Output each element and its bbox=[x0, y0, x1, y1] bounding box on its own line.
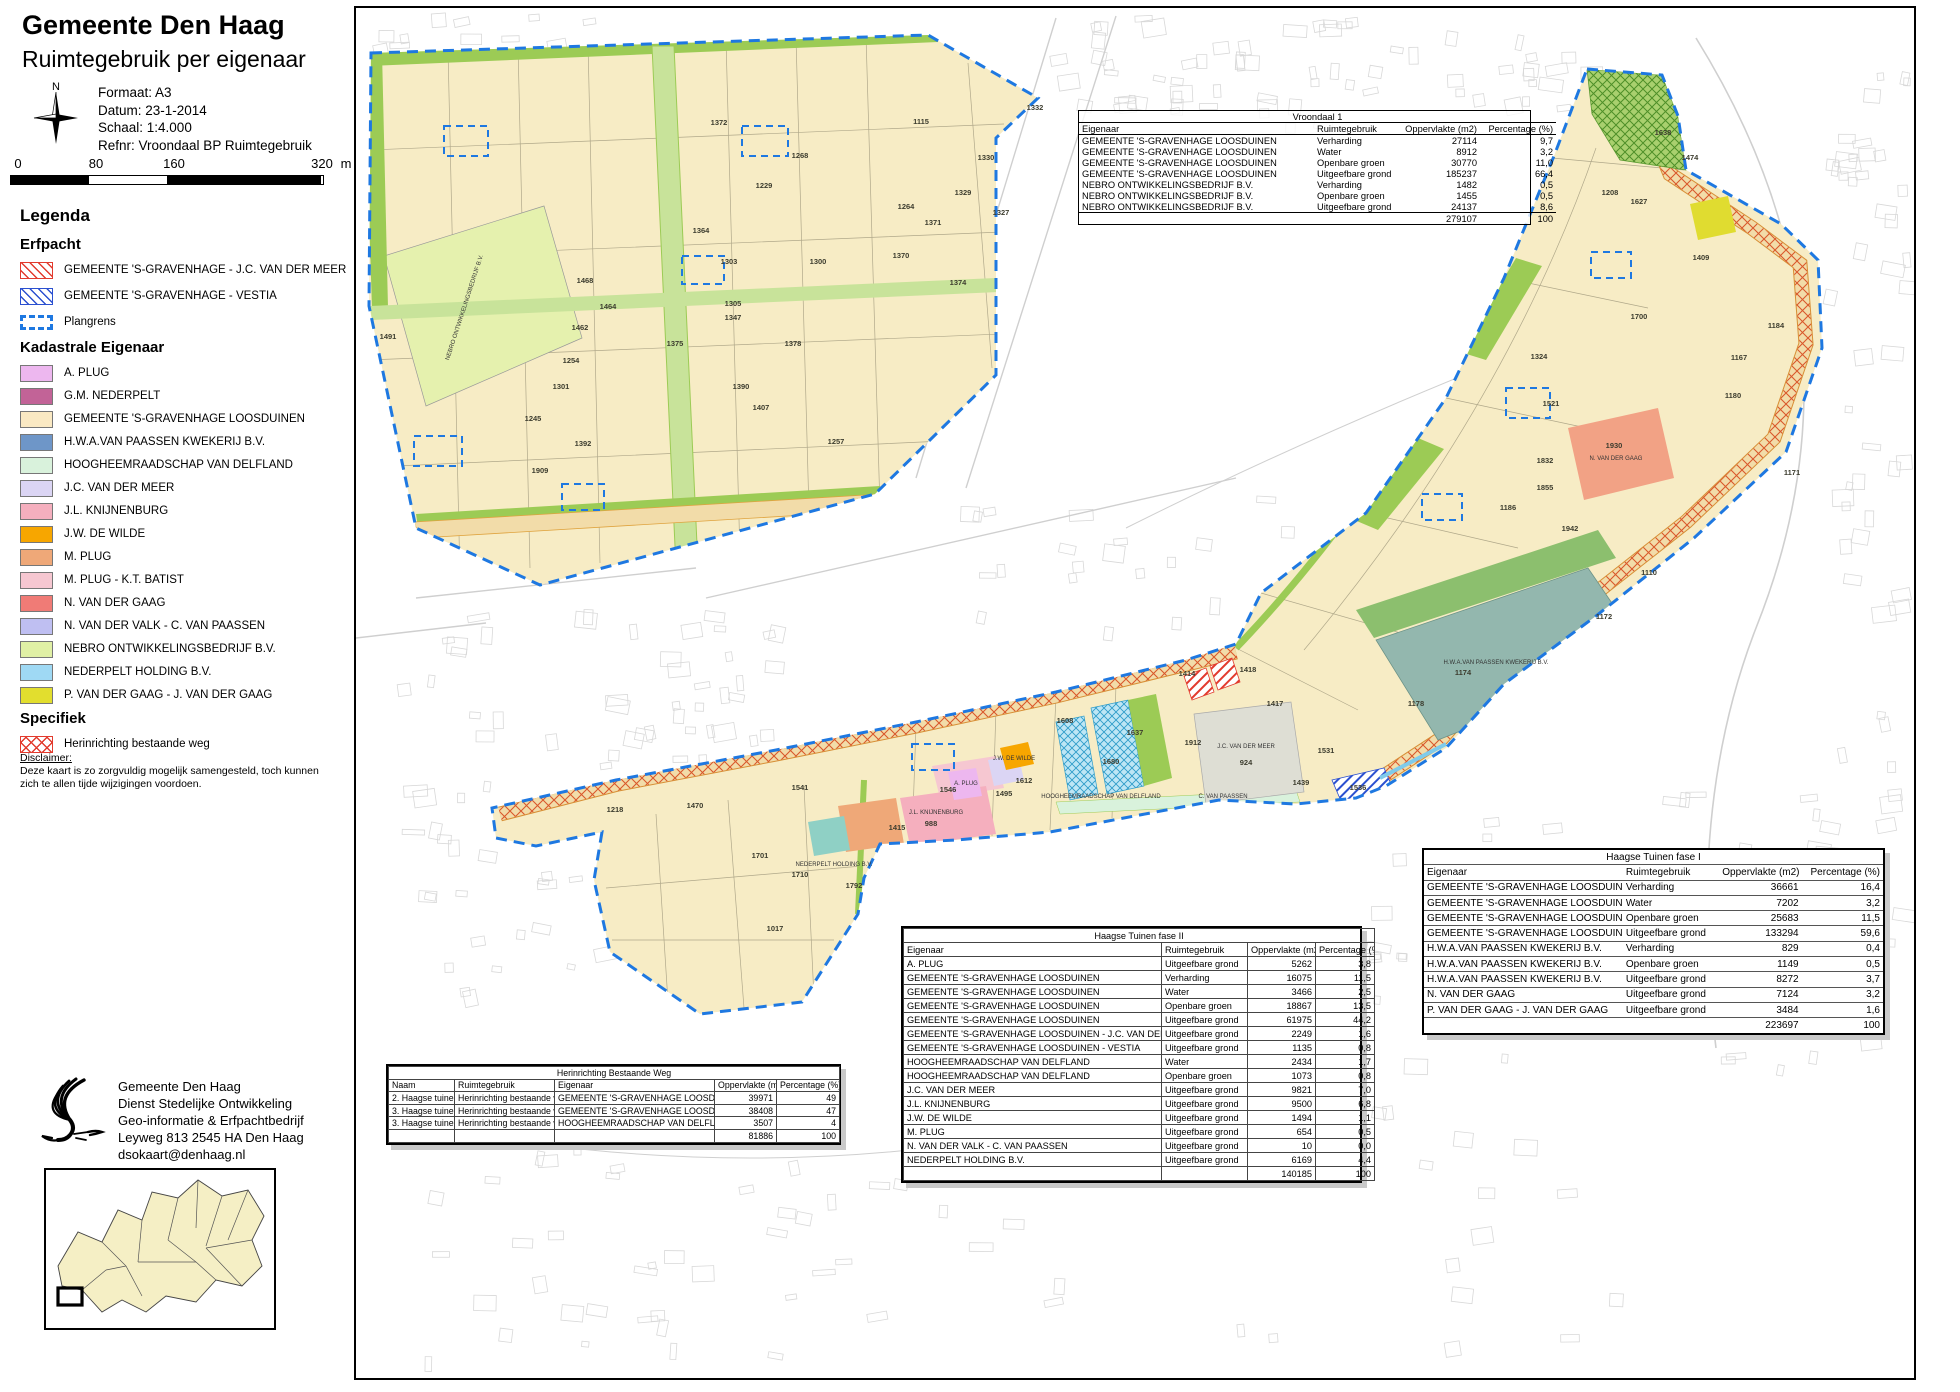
legend-item: GEMEENTE 'S-GRAVENHAGE LOOSDUINEN bbox=[20, 410, 350, 428]
legend-item: GEMEENTE 'S-GRAVENHAGE - VESTIA bbox=[20, 287, 350, 305]
table-cell: 2249 bbox=[1248, 1027, 1316, 1041]
owner-name: J.L. KNIJNENBURG bbox=[909, 810, 964, 816]
owner-name: N. VAN DER GAAG bbox=[1590, 456, 1643, 462]
table-cell: 1,6 bbox=[1802, 1002, 1883, 1017]
legend-swatch-solid bbox=[20, 526, 53, 543]
legend-item-label: GEMEENTE 'S-GRAVENHAGE - VESTIA bbox=[64, 290, 277, 302]
table-cell: 3,2 bbox=[1802, 895, 1883, 910]
legend-swatch-solid bbox=[20, 365, 53, 382]
parcel-number: 1174 bbox=[1455, 668, 1472, 677]
table-cell bbox=[455, 1129, 555, 1142]
table-cell: 1482 bbox=[1402, 179, 1480, 190]
north-label: N bbox=[52, 81, 60, 93]
parcel-number: 1186 bbox=[1500, 503, 1516, 512]
table-cell: Verharding bbox=[1162, 971, 1248, 985]
parcel-number: 1612 bbox=[1016, 776, 1033, 785]
parcel-number: 1792 bbox=[846, 881, 863, 890]
table-cell: H.W.A.VAN PAASSEN KWEKERIJ B.V. bbox=[1424, 957, 1623, 972]
table-cell: Uitgeefbare grond bbox=[1623, 987, 1719, 1002]
parcel-number: 1491 bbox=[380, 332, 397, 341]
parcel-number: 1329 bbox=[955, 188, 972, 197]
parcel-number: 1330 bbox=[978, 153, 995, 162]
legend-swatch-cross-red bbox=[20, 736, 53, 753]
table-cell: 100 bbox=[1316, 1167, 1375, 1181]
table-cell: 3,8 bbox=[1316, 957, 1375, 971]
parcel-number: 1378 bbox=[785, 339, 802, 348]
table-cell: GEMEENTE 'S-GRAVENHAGE LOOSDUINEN bbox=[1424, 911, 1623, 926]
table-cell: 6,8 bbox=[1316, 1097, 1375, 1111]
table-cell: 47 bbox=[777, 1104, 840, 1117]
table-cell: Percentage (%) bbox=[1316, 943, 1375, 957]
table-cell: 18867 bbox=[1248, 999, 1316, 1013]
table-cell: 0,5 bbox=[1802, 957, 1883, 972]
table-cell: Herinrichting bestaande weg bbox=[455, 1117, 555, 1130]
parcel-nederpelt-lobe bbox=[808, 816, 850, 856]
legend-item-label: HOOGHEEMRAADSCHAP VAN DELFLAND bbox=[64, 459, 293, 471]
table-cell: 1073 bbox=[1248, 1069, 1316, 1083]
table-cell: 0,4 bbox=[1802, 941, 1883, 956]
legend-item: J.L. KNIJNENBURG bbox=[20, 502, 350, 520]
legend-item: M. PLUG - K.T. BATIST bbox=[20, 571, 350, 589]
legend-item: NEDERPELT HOLDING B.V. bbox=[20, 663, 350, 681]
table-cell: Water bbox=[1314, 146, 1402, 157]
table-cell: H.W.A.VAN PAASSEN KWEKERIJ B.V. bbox=[1424, 941, 1623, 956]
table-cell: NEBRO ONTWIKKELINGSBEDRIJF B.V. bbox=[1079, 179, 1314, 190]
legend-swatch-solid bbox=[20, 503, 53, 520]
table-cell: GEMEENTE 'S-GRAVENHAGE LOOSDUINEN bbox=[1079, 146, 1314, 157]
table-cell: Oppervlakte (m2) bbox=[1248, 943, 1316, 957]
addr-line: Dienst Stedelijke Ontwikkeling bbox=[118, 1095, 304, 1112]
legend-item-label: N. VAN DER GAAG bbox=[64, 597, 165, 609]
parcel-number: 1407 bbox=[753, 403, 770, 412]
parcel-number: 1268 bbox=[792, 151, 809, 160]
parcel-number: 1495 bbox=[996, 789, 1013, 798]
table-cell: 1135 bbox=[1248, 1041, 1316, 1055]
table-cell: 3,2 bbox=[1480, 146, 1556, 157]
table-cell: Verharding bbox=[1314, 179, 1402, 190]
table-cell: 4,4 bbox=[1316, 1153, 1375, 1167]
parcel-number: 1110 bbox=[1641, 568, 1657, 577]
table-cell: Eigenaar bbox=[904, 943, 1162, 957]
parcel-number: 1257 bbox=[828, 437, 845, 446]
table-cell: 100 bbox=[1480, 213, 1556, 225]
legend-item-label: G.M. NEDERPELT bbox=[64, 390, 160, 402]
table-cell: 100 bbox=[777, 1129, 840, 1142]
table-cell: 11,5 bbox=[1802, 911, 1883, 926]
table-cell: 5262 bbox=[1248, 957, 1316, 971]
addr-line: Gemeente Den Haag bbox=[118, 1078, 304, 1095]
table-haagse-tuinen-fase-2: Haagse Tuinen fase IIEigenaarRuimtegebru… bbox=[901, 926, 1362, 1183]
table-cell: Oppervlakte (m2 bbox=[715, 1079, 777, 1092]
parcel-number: 1680 bbox=[1103, 757, 1120, 766]
parcel-number: 1392 bbox=[575, 439, 592, 448]
table-cell: GEMEENTE 'S-GRAVENHAGE LOOSDUINEN bbox=[1079, 168, 1314, 179]
table-cell: 7202 bbox=[1719, 895, 1801, 910]
table-cell: NEDERPELT HOLDING B.V. bbox=[904, 1153, 1162, 1167]
parcel-number: 1172 bbox=[1596, 612, 1612, 621]
meta-formaat: Formaat: A3 bbox=[98, 84, 312, 102]
legend-swatch-solid bbox=[20, 618, 53, 635]
table-cell: 9500 bbox=[1248, 1097, 1316, 1111]
locator-highlight-marker bbox=[58, 1288, 82, 1305]
table-cell: Water bbox=[1162, 985, 1248, 999]
legend-swatch-solid bbox=[20, 572, 53, 589]
parcel-number: 1414 bbox=[1179, 669, 1197, 678]
parcel-number: 1208 bbox=[1602, 188, 1619, 197]
table-cell: 13,5 bbox=[1316, 999, 1375, 1013]
table-cell: Naam bbox=[389, 1079, 455, 1092]
parcel-number: 1468 bbox=[577, 276, 594, 285]
table-cell: Openbare groen bbox=[1162, 999, 1248, 1013]
table-cell: P. VAN DER GAAG - J. VAN DER GAAG bbox=[1424, 1002, 1623, 1017]
legend-swatch-dash-blue bbox=[20, 315, 53, 330]
table-cell: 27114 bbox=[1402, 135, 1480, 147]
table-cell bbox=[1314, 213, 1402, 225]
table-cell: 0,5 bbox=[1316, 1125, 1375, 1139]
table-cell: Ruimtegebruik bbox=[1162, 943, 1248, 957]
table-cell: 7,0 bbox=[1316, 1083, 1375, 1097]
table-haagse-tuinen-fase-1: Haagse Tuinen fase IEigenaarRuimtegebrui… bbox=[1422, 848, 1885, 1035]
table-cell: Openbare groen bbox=[1314, 190, 1402, 201]
table-cell: Verharding bbox=[1623, 880, 1719, 895]
legend-section-heading: Kadastrale Eigenaar bbox=[20, 339, 350, 356]
legend-item: Plangrens bbox=[20, 313, 350, 331]
table-cell: 3,7 bbox=[1802, 972, 1883, 987]
table-cell bbox=[904, 1167, 1162, 1181]
legend-item: N. VAN DER GAAG bbox=[20, 594, 350, 612]
table-cell: Percentage (%) bbox=[1480, 123, 1556, 135]
parcel-number: 1370 bbox=[893, 251, 910, 260]
table-cell: Percentage (%) bbox=[777, 1079, 840, 1092]
table-cell: M. PLUG bbox=[904, 1125, 1162, 1139]
table-cell: 38408 bbox=[715, 1104, 777, 1117]
legend-swatch-solid bbox=[20, 687, 53, 704]
parcel-number: 1301 bbox=[553, 382, 570, 391]
table-cell: HOOGHEEMRAADSCHAP VAN DELFLAND bbox=[904, 1069, 1162, 1083]
legend-item-label: NEDERPELT HOLDING B.V. bbox=[64, 666, 211, 678]
legend-swatch-hatch-blue bbox=[20, 288, 53, 305]
table-cell: Openbare groen bbox=[1623, 957, 1719, 972]
table-cell: GEMEENTE 'S-GRAVENHAGE LOOSDUINEN bbox=[1424, 895, 1623, 910]
table-cell: 11,5 bbox=[1316, 971, 1375, 985]
table-cell: 2. Haagse tuinen bbox=[389, 1092, 455, 1105]
disclaimer-text: Deze kaart is zo zorgvuldig mogelijk sam… bbox=[20, 765, 319, 790]
parcel-number: 1390 bbox=[733, 382, 750, 391]
legend-item-label: Plangrens bbox=[64, 316, 116, 328]
locator-map bbox=[44, 1168, 276, 1330]
table-cell: GEMEENTE 'S-GRAVENHAGE LOOSDUINEN bbox=[904, 971, 1162, 985]
parcel-number: 1327 bbox=[993, 208, 1010, 217]
table-cell: GEMEENTE 'S-GRAVENHAGE LOOSDUINEN bbox=[904, 985, 1162, 999]
table-title: Vroondaal 1 bbox=[1079, 111, 1556, 123]
table-cell: N. VAN DER VALK - C. VAN PAASSEN bbox=[904, 1139, 1162, 1153]
table-cell: 44,2 bbox=[1316, 1013, 1375, 1027]
parcel-number: 1332 bbox=[1027, 103, 1044, 112]
parcel-number: 1254 bbox=[563, 356, 581, 365]
table-cell: 1149 bbox=[1719, 957, 1801, 972]
legend-item: H.W.A.VAN PAASSEN KWEKERIJ B.V. bbox=[20, 433, 350, 451]
table-cell: GEMEENTE 'S-GRAVENHAGE LOOSDUINEN bbox=[904, 999, 1162, 1013]
legend: Legenda ErfpachtGEMEENTE 'S-GRAVENHAGE -… bbox=[20, 206, 350, 758]
parcel-number: 1184 bbox=[1768, 321, 1785, 330]
table-cell: Uitgeefbare grond bbox=[1162, 1097, 1248, 1111]
parcel-number: 1462 bbox=[572, 323, 589, 332]
table-cell: 654 bbox=[1248, 1125, 1316, 1139]
owner-name: J.C. VAN DER MEER bbox=[1217, 744, 1275, 750]
table-cell: 10 bbox=[1248, 1139, 1316, 1153]
parcel-number: 1627 bbox=[1631, 197, 1648, 206]
addr-line: Geo-informatie & Erfpachtbedrijf bbox=[118, 1112, 304, 1129]
table-cell: Uitgeefbare grond bbox=[1162, 1125, 1248, 1139]
table-cell: HOOGHEEMRAADSCHAP VAN DELFLAND bbox=[904, 1055, 1162, 1069]
parcel-number: 1855 bbox=[1537, 483, 1554, 492]
owner-name: NEDERPELT HOLDING B.V. bbox=[796, 862, 873, 868]
parcel-number: 1418 bbox=[1240, 665, 1257, 674]
parcel-number: 1364 bbox=[693, 226, 711, 235]
table-cell: 1455 bbox=[1402, 190, 1480, 201]
table-cell: Ruimtegebruik bbox=[455, 1079, 555, 1092]
parcel-number: 1474 bbox=[1682, 153, 1700, 162]
parcel-number: 1521 bbox=[1543, 399, 1560, 408]
table-cell: GEMEENTE 'S-GRAVENHAGE LOOSDUINEN bbox=[1424, 880, 1623, 895]
parcel-number: 1439 bbox=[1293, 778, 1310, 787]
legend-item-label: J.L. KNIJNENBURG bbox=[64, 505, 168, 517]
parcel-p-van-der-gaag bbox=[1690, 196, 1736, 240]
table-cell: 829 bbox=[1719, 941, 1801, 956]
parcel-number: 1912 bbox=[1185, 738, 1202, 747]
parcel-number: 1264 bbox=[898, 202, 916, 211]
table-cell: 9821 bbox=[1248, 1083, 1316, 1097]
addr-line: Leyweg 813 2545 HA Den Haag bbox=[118, 1129, 304, 1146]
table-cell: Uitgeefbare grond bbox=[1314, 201, 1402, 213]
parcel-number: 1305 bbox=[725, 299, 742, 308]
disclaimer-heading: Disclaimer: bbox=[20, 752, 72, 764]
parcel-number: 1832 bbox=[1537, 456, 1554, 465]
legend-item-label: J.W. DE WILDE bbox=[64, 528, 145, 540]
table-title: Herinrichting Bestaande Weg bbox=[389, 1067, 840, 1080]
legend-item: NEBRO ONTWIKKELINGSBEDRIJF B.V. bbox=[20, 640, 350, 658]
parcel-number: 1536 bbox=[1350, 783, 1367, 792]
table-cell: H.W.A.VAN PAASSEN KWEKERIJ B.V. bbox=[1424, 972, 1623, 987]
table-cell: 49 bbox=[777, 1092, 840, 1105]
legend-swatch-solid bbox=[20, 480, 53, 497]
legend-item-label: M. PLUG - K.T. BATIST bbox=[64, 574, 184, 586]
parcel-number: 1417 bbox=[1267, 699, 1284, 708]
owner-name: J.W. DE WILDE bbox=[993, 756, 1035, 762]
parcel-number: 1409 bbox=[1693, 253, 1710, 262]
legend-item-label: GEMEENTE 'S-GRAVENHAGE - J.C. VAN DER ME… bbox=[64, 264, 346, 276]
parcel-number: 1371 bbox=[925, 218, 942, 227]
scale-unit: m bbox=[341, 156, 352, 171]
table-cell: 3,2 bbox=[1802, 987, 1883, 1002]
publisher-address: Gemeente Den Haag Dienst Stedelijke Ontw… bbox=[118, 1078, 304, 1163]
table-cell: 6169 bbox=[1248, 1153, 1316, 1167]
table-cell: Openbare groen bbox=[1162, 1069, 1248, 1083]
owner-name: C. VAN PAASSEN bbox=[1198, 794, 1247, 800]
table-cell: 0,5 bbox=[1480, 190, 1556, 201]
north-arrow-icon: N bbox=[28, 80, 84, 146]
addr-line: dsokaart@denhaag.nl bbox=[118, 1146, 304, 1163]
legend-item-label: N. VAN DER VALK - C. VAN PAASSEN bbox=[64, 620, 265, 632]
legend-item: HOOGHEEMRAADSCHAP VAN DELFLAND bbox=[20, 456, 350, 474]
table-cell: 61975 bbox=[1248, 1013, 1316, 1027]
table-cell: 133294 bbox=[1719, 926, 1801, 941]
owner-name: H.W.A.VAN PAASSEN KWEKERIJ B.V. bbox=[1444, 660, 1549, 666]
parcel-number: 1415 bbox=[889, 823, 906, 832]
table-cell: Uitgeefbare grond bbox=[1162, 1027, 1248, 1041]
table-cell: Ruimtegebruik bbox=[1623, 865, 1719, 880]
table-cell: GEMEENTE 'S-GRAVENHAGE LOOSDUINEN bbox=[555, 1104, 715, 1117]
legend-item: N. VAN DER VALK - C. VAN PAASSEN bbox=[20, 617, 350, 635]
scale-bar: 0 80 160 320 m bbox=[10, 156, 355, 192]
table-cell: A. PLUG bbox=[904, 957, 1162, 971]
parcel-number: 1710 bbox=[792, 870, 809, 879]
table-cell: 9,7 bbox=[1480, 135, 1556, 147]
table-cell: 0,8 bbox=[1316, 1041, 1375, 1055]
table-cell: 36661 bbox=[1719, 880, 1801, 895]
legend-item-label: P. VAN DER GAAG - J. VAN DER GAAG bbox=[64, 689, 272, 701]
table-cell: Herinrichting bestaande weg bbox=[455, 1092, 555, 1105]
table-cell: 8272 bbox=[1719, 972, 1801, 987]
table-cell: 0,5 bbox=[1480, 179, 1556, 190]
table-cell: 16075 bbox=[1248, 971, 1316, 985]
table-cell: J.C. VAN DER MEER bbox=[904, 1083, 1162, 1097]
table-cell: 3507 bbox=[715, 1117, 777, 1130]
parcel-number: 1374 bbox=[950, 278, 968, 287]
page-subtitle: Ruimtegebruik per eigenaar bbox=[22, 46, 306, 73]
table-cell: 8912 bbox=[1402, 146, 1480, 157]
table-herinrichting-bestaande-weg: Herinrichting Bestaande WegNaamRuimtegeb… bbox=[386, 1064, 841, 1145]
parcel-number: 1375 bbox=[667, 339, 684, 348]
table-cell: Uitgeefbare grond bbox=[1623, 1002, 1719, 1017]
table-cell: Water bbox=[1162, 1055, 1248, 1069]
table-cell: 16,4 bbox=[1802, 880, 1883, 895]
disclaimer: Disclaimer: Deze kaart is zo zorgvuldig … bbox=[20, 752, 320, 791]
table-cell: Verharding bbox=[1314, 135, 1402, 147]
table-cell: 223697 bbox=[1719, 1018, 1801, 1033]
parcel-number: 1303 bbox=[721, 257, 738, 266]
page-title: Gemeente Den Haag bbox=[22, 10, 285, 41]
parcel-number: 1541 bbox=[792, 783, 809, 792]
scale-label-0: 0 bbox=[14, 156, 21, 171]
parcel-number: 1171 bbox=[1784, 468, 1800, 477]
parcel-number: 1218 bbox=[607, 805, 624, 814]
table-cell: 1,7 bbox=[1316, 1055, 1375, 1069]
table-cell: J.W. DE WILDE bbox=[904, 1111, 1162, 1125]
table-cell: GEMEENTE 'S-GRAVENHAGE LOOSDUINEN - VEST… bbox=[904, 1041, 1162, 1055]
table-cell bbox=[1424, 1018, 1623, 1033]
table-cell: Uitgeefbare grond bbox=[1162, 1083, 1248, 1097]
table-cell: Eigenaar bbox=[1079, 123, 1314, 135]
parcel-number: 1229 bbox=[756, 181, 773, 190]
parcel-number: 1464 bbox=[600, 302, 618, 311]
table-cell: Openbare groen bbox=[1314, 157, 1402, 168]
legend-item: J.C. VAN DER MEER bbox=[20, 479, 350, 497]
table-cell: Uitgeefbare grond bbox=[1623, 926, 1719, 941]
table-cell: 1494 bbox=[1248, 1111, 1316, 1125]
legend-item: P. VAN DER GAAG - J. VAN DER GAAG bbox=[20, 686, 350, 704]
legend-item: A. PLUG bbox=[20, 364, 350, 382]
table-cell: 3466 bbox=[1248, 985, 1316, 999]
table-cell: 39971 bbox=[715, 1092, 777, 1105]
table-cell: NEBRO ONTWIKKELINGSBEDRIJF B.V. bbox=[1079, 201, 1314, 213]
legend-section-heading: Erfpacht bbox=[20, 236, 350, 253]
table-cell: Uitgeefbare grond bbox=[1314, 168, 1402, 179]
parcel-number: 924 bbox=[1240, 758, 1253, 767]
legend-swatch-solid bbox=[20, 664, 53, 681]
table-cell: 185237 bbox=[1402, 168, 1480, 179]
table-cell: 66,4 bbox=[1480, 168, 1556, 179]
parcel-number: 1115 bbox=[913, 117, 929, 126]
table-cell: Uitgeefbare grond bbox=[1162, 1013, 1248, 1027]
table-cell: 279107 bbox=[1402, 213, 1480, 225]
map-canvas: 1372111513321330132913271371137013741268… bbox=[354, 6, 1916, 1380]
table-cell: Openbare groen bbox=[1623, 911, 1719, 926]
table-cell: 100 bbox=[1802, 1018, 1883, 1033]
table-cell: Verharding bbox=[1623, 941, 1719, 956]
table-cell: NEBRO ONTWIKKELINGSBEDRIJF B.V. bbox=[1079, 190, 1314, 201]
table-cell bbox=[555, 1129, 715, 1142]
parcel-number: 1347 bbox=[725, 313, 742, 322]
parcel-number: 1930 bbox=[1606, 441, 1623, 450]
table-cell: Uitgeefbare grond bbox=[1162, 957, 1248, 971]
parcel-number: 1372 bbox=[711, 118, 728, 127]
parcel-jc-van-der-meer bbox=[1194, 702, 1304, 804]
legend-item-label: GEMEENTE 'S-GRAVENHAGE LOOSDUINEN bbox=[64, 413, 305, 425]
legend-item: Herinrichting bestaande weg bbox=[20, 735, 350, 753]
table-cell: Uitgeefbare grond bbox=[1623, 972, 1719, 987]
parcel-number: 1909 bbox=[532, 466, 549, 475]
table-cell: GEMEENTE 'S-GRAVENHAGE LOOSDUINEN bbox=[904, 1013, 1162, 1027]
table-cell: 3. Haagse tuinen bbox=[389, 1104, 455, 1117]
scale-bar-segments bbox=[10, 175, 324, 185]
scale-label-80: 80 bbox=[89, 156, 103, 171]
table-cell: HOOGHEEMRAADSCHAP VAN DELFLAND bbox=[555, 1117, 715, 1130]
meta-refnr: Refnr: Vroondaal BP Ruimtegebruik bbox=[98, 137, 312, 155]
parcel-number: 1167 bbox=[1731, 353, 1747, 362]
map-metadata: Formaat: A3 Datum: 23-1-2014 Schaal: 1:4… bbox=[98, 84, 312, 154]
scale-label-320: 320 bbox=[311, 156, 333, 171]
parcel-number: 1017 bbox=[767, 924, 784, 933]
table-cell bbox=[389, 1129, 455, 1142]
legend-swatch-solid bbox=[20, 549, 53, 566]
table-cell: GEMEENTE 'S-GRAVENHAGE LOOSDUINEN - J.C.… bbox=[904, 1027, 1162, 1041]
table-cell: Percentage (%) bbox=[1802, 865, 1883, 880]
parcel-number: 1300 bbox=[810, 257, 827, 266]
table-cell bbox=[1162, 1167, 1248, 1181]
table-cell: GEMEENTE 'S-GRAVENHAGE LOOSDUINEN bbox=[555, 1092, 715, 1105]
parcel-number: 1942 bbox=[1562, 524, 1579, 533]
table-cell: 4 bbox=[777, 1117, 840, 1130]
legend-swatch-solid bbox=[20, 411, 53, 428]
table-cell: 140185 bbox=[1248, 1167, 1316, 1181]
parcel-number: 1324 bbox=[1531, 352, 1549, 361]
table-cell: GEMEENTE 'S-GRAVENHAGE LOOSDUINEN bbox=[1079, 135, 1314, 147]
parcel-number: 1245 bbox=[525, 414, 542, 423]
table-cell: 0,0 bbox=[1316, 1139, 1375, 1153]
legend-swatch-solid bbox=[20, 388, 53, 405]
parcel-number: 1470 bbox=[687, 801, 704, 810]
meta-datum: Datum: 23-1-2014 bbox=[98, 102, 312, 120]
parcel-number: 1700 bbox=[1631, 312, 1648, 321]
parcel-number: 988 bbox=[925, 819, 938, 828]
parcel-number: 1701 bbox=[752, 851, 769, 860]
table-cell bbox=[1623, 1018, 1719, 1033]
legend-item-label: M. PLUG bbox=[64, 551, 111, 563]
legend-title: Legenda bbox=[20, 206, 350, 226]
meta-schaal: Schaal: 1:4.000 bbox=[98, 119, 312, 137]
parcel-number: 1178 bbox=[1408, 699, 1424, 708]
